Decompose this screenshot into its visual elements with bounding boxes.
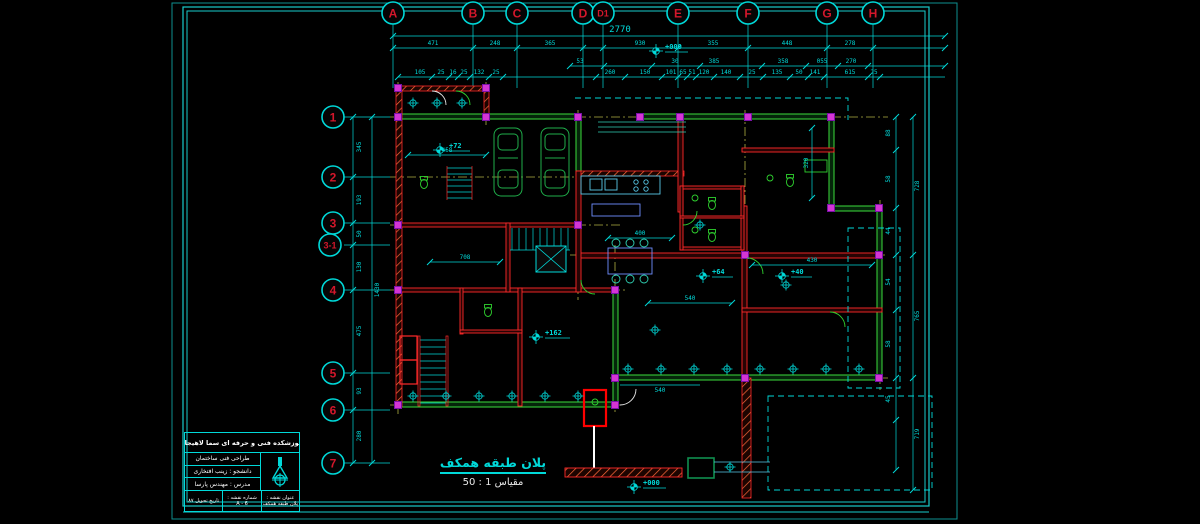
svg-text:58: 58 bbox=[885, 340, 892, 348]
svg-text:88: 88 bbox=[885, 129, 892, 137]
grid-bubble-3-1: 3-1 bbox=[319, 234, 341, 256]
svg-text:141: 141 bbox=[810, 69, 821, 76]
title-block-student: دانشجو : زینب افتخاری bbox=[185, 466, 260, 479]
svg-text:5: 5 bbox=[330, 367, 337, 381]
grid-bubble-D1: D1 bbox=[592, 2, 614, 24]
level-patio: +64 bbox=[712, 268, 725, 276]
svg-text:1430: 1430 bbox=[374, 282, 381, 297]
svg-text:A: A bbox=[389, 7, 398, 21]
stair-bottom bbox=[418, 336, 448, 406]
svg-text:53: 53 bbox=[576, 58, 584, 65]
grid-bubble-E: E bbox=[667, 2, 689, 24]
grid-bubble-G: G bbox=[816, 2, 838, 24]
svg-text:140: 140 bbox=[721, 69, 732, 76]
svg-text:3: 3 bbox=[330, 217, 337, 231]
level-entry: +000 bbox=[643, 479, 660, 487]
car-2 bbox=[541, 128, 569, 196]
grid-bubble-B: B bbox=[462, 2, 484, 24]
svg-text:135: 135 bbox=[772, 69, 783, 76]
grid-bubble-4: 4 bbox=[322, 279, 344, 301]
svg-text:25: 25 bbox=[437, 69, 445, 76]
svg-text:280: 280 bbox=[356, 430, 363, 441]
svg-text:H: H bbox=[869, 7, 878, 21]
fireplace-box bbox=[584, 390, 606, 426]
car-1 bbox=[494, 128, 522, 196]
title-block-date: تاریخ تحویل ۸۷ bbox=[185, 491, 222, 511]
svg-text:51: 51 bbox=[688, 69, 696, 76]
overall-width-dim: 2770 bbox=[609, 25, 631, 35]
svg-text:385: 385 bbox=[709, 58, 720, 65]
svg-text:F: F bbox=[744, 7, 751, 21]
svg-text:30: 30 bbox=[671, 58, 679, 65]
level-markers: +72 +64 +40 +162 +000 +000 bbox=[433, 43, 812, 494]
dimension-chain-top: 2770 471 248 365 930 355 448 278 53 30 3… bbox=[390, 25, 948, 80]
svg-text:448: 448 bbox=[782, 40, 793, 47]
svg-text:765: 765 bbox=[914, 310, 921, 321]
drafting-logo-icon bbox=[267, 456, 293, 488]
svg-text:708: 708 bbox=[460, 254, 471, 261]
title-block: آموزشکده فنی و حرفه ای سما لاهیجان طراحی… bbox=[184, 432, 300, 512]
svg-text:D: D bbox=[579, 7, 588, 21]
svg-text:345: 345 bbox=[356, 141, 363, 152]
grid-bubble-1: 1 bbox=[322, 106, 344, 128]
svg-text:248: 248 bbox=[490, 40, 501, 47]
svg-text:2: 2 bbox=[330, 171, 337, 185]
title-block-instructor: مدرس : مهندس پارسا bbox=[185, 478, 260, 490]
svg-text:101: 101 bbox=[666, 69, 677, 76]
kitchen-counter bbox=[581, 176, 660, 216]
plan-scale-text: مقیاس 1 : 50 bbox=[428, 477, 558, 488]
grid-bubble-2: 2 bbox=[322, 166, 344, 188]
svg-text:16: 16 bbox=[449, 69, 457, 76]
svg-text:930: 930 bbox=[635, 40, 646, 47]
svg-text:475: 475 bbox=[356, 325, 363, 336]
svg-text:6: 6 bbox=[330, 404, 337, 418]
stair-top bbox=[447, 166, 472, 200]
svg-text:E: E bbox=[674, 7, 682, 21]
ceiling-fixtures bbox=[408, 98, 865, 402]
svg-text:540: 540 bbox=[655, 387, 666, 394]
level-terrace: +40 bbox=[791, 268, 804, 276]
svg-text:320: 320 bbox=[803, 157, 810, 168]
svg-text:365: 365 bbox=[545, 40, 556, 47]
closets bbox=[400, 336, 417, 384]
grid-bubble-H: H bbox=[862, 2, 884, 24]
grid-bubble-D: D bbox=[572, 2, 594, 24]
title-block-course: طراحی فنی ساختمان bbox=[185, 453, 260, 466]
svg-text:65: 65 bbox=[679, 69, 687, 76]
svg-text:25: 25 bbox=[460, 69, 468, 76]
svg-text:055: 055 bbox=[817, 58, 828, 65]
level-yard: +162 bbox=[545, 329, 562, 337]
svg-text:4: 4 bbox=[330, 284, 337, 298]
svg-text:270: 270 bbox=[846, 58, 857, 65]
svg-text:D1: D1 bbox=[597, 9, 609, 19]
svg-text:278: 278 bbox=[845, 40, 856, 47]
grid-bubble-5: 5 bbox=[322, 362, 344, 384]
svg-text:540: 540 bbox=[685, 295, 696, 302]
svg-text:3-1: 3-1 bbox=[323, 241, 336, 251]
walkway-hatch bbox=[565, 468, 682, 477]
plan-title: پلان طبقه همکف مقیاس 1 : 50 bbox=[428, 452, 558, 488]
svg-text:105: 105 bbox=[415, 69, 426, 76]
grid-bubble-6: 6 bbox=[322, 399, 344, 421]
svg-text:150: 150 bbox=[640, 69, 651, 76]
svg-text:355: 355 bbox=[708, 40, 719, 47]
svg-text:120: 120 bbox=[699, 69, 710, 76]
svg-text:93: 93 bbox=[356, 387, 363, 395]
elevator bbox=[536, 246, 566, 272]
svg-text:615: 615 bbox=[845, 69, 856, 76]
svg-text:728: 728 bbox=[914, 180, 921, 191]
svg-text:50: 50 bbox=[356, 230, 363, 238]
level-top: +000 bbox=[665, 43, 682, 51]
title-block-sheet-name: عنوان نقشه : پلان طبقه همکف bbox=[261, 491, 299, 511]
grid-bubble-A: A bbox=[382, 2, 404, 24]
title-block-school: آموزشکده فنی و حرفه ای سما لاهیجان bbox=[185, 433, 299, 453]
garage-cars bbox=[494, 128, 569, 196]
row-leader-lines bbox=[344, 117, 390, 463]
dimension-chain-right: 88 58 44 54 58 45 728 765 719 bbox=[885, 114, 921, 493]
svg-text:B: B bbox=[469, 7, 478, 21]
svg-text:58: 58 bbox=[885, 175, 892, 183]
floor-plan-drawing: A B C D D1 E F G H 1 2 3 3-1 4 5 6 7 bbox=[0, 0, 1200, 524]
cad-model-space: A B C D D1 E F G H 1 2 3 3-1 4 5 6 7 bbox=[0, 0, 1200, 524]
svg-text:260: 260 bbox=[605, 69, 616, 76]
patio-steps bbox=[598, 122, 686, 132]
plan-title-text: پلان طبقه همکف bbox=[440, 455, 546, 474]
svg-text:25: 25 bbox=[870, 69, 878, 76]
svg-text:400: 400 bbox=[635, 230, 646, 237]
svg-text:25: 25 bbox=[748, 69, 756, 76]
svg-text:50: 50 bbox=[795, 69, 803, 76]
grid-bubble-3: 3 bbox=[322, 212, 344, 234]
grid-bubble-F: F bbox=[737, 2, 759, 24]
interior-dimensions: 458 400 430 540 320 708 540 bbox=[405, 125, 875, 394]
svg-text:54: 54 bbox=[885, 278, 892, 286]
svg-text:C: C bbox=[513, 7, 522, 21]
svg-text:193: 193 bbox=[356, 194, 363, 205]
svg-text:719: 719 bbox=[914, 428, 921, 439]
svg-text:132: 132 bbox=[474, 69, 485, 76]
structural-columns bbox=[395, 85, 883, 409]
grid-bubble-7: 7 bbox=[322, 452, 344, 474]
svg-text:358: 358 bbox=[778, 58, 789, 65]
svg-text:7: 7 bbox=[330, 457, 337, 471]
grid-bubble-C: C bbox=[506, 2, 528, 24]
svg-text:1: 1 bbox=[330, 111, 337, 125]
svg-text:430: 430 bbox=[807, 257, 818, 264]
svg-text:25: 25 bbox=[492, 69, 500, 76]
title-block-logo bbox=[260, 453, 299, 490]
svg-text:458: 458 bbox=[442, 147, 453, 154]
svg-text:130: 130 bbox=[356, 261, 363, 272]
svg-text:G: G bbox=[822, 7, 831, 21]
title-block-sheet-number: شماره نقشه : A - 6 bbox=[222, 491, 260, 511]
svg-text:471: 471 bbox=[428, 40, 439, 47]
